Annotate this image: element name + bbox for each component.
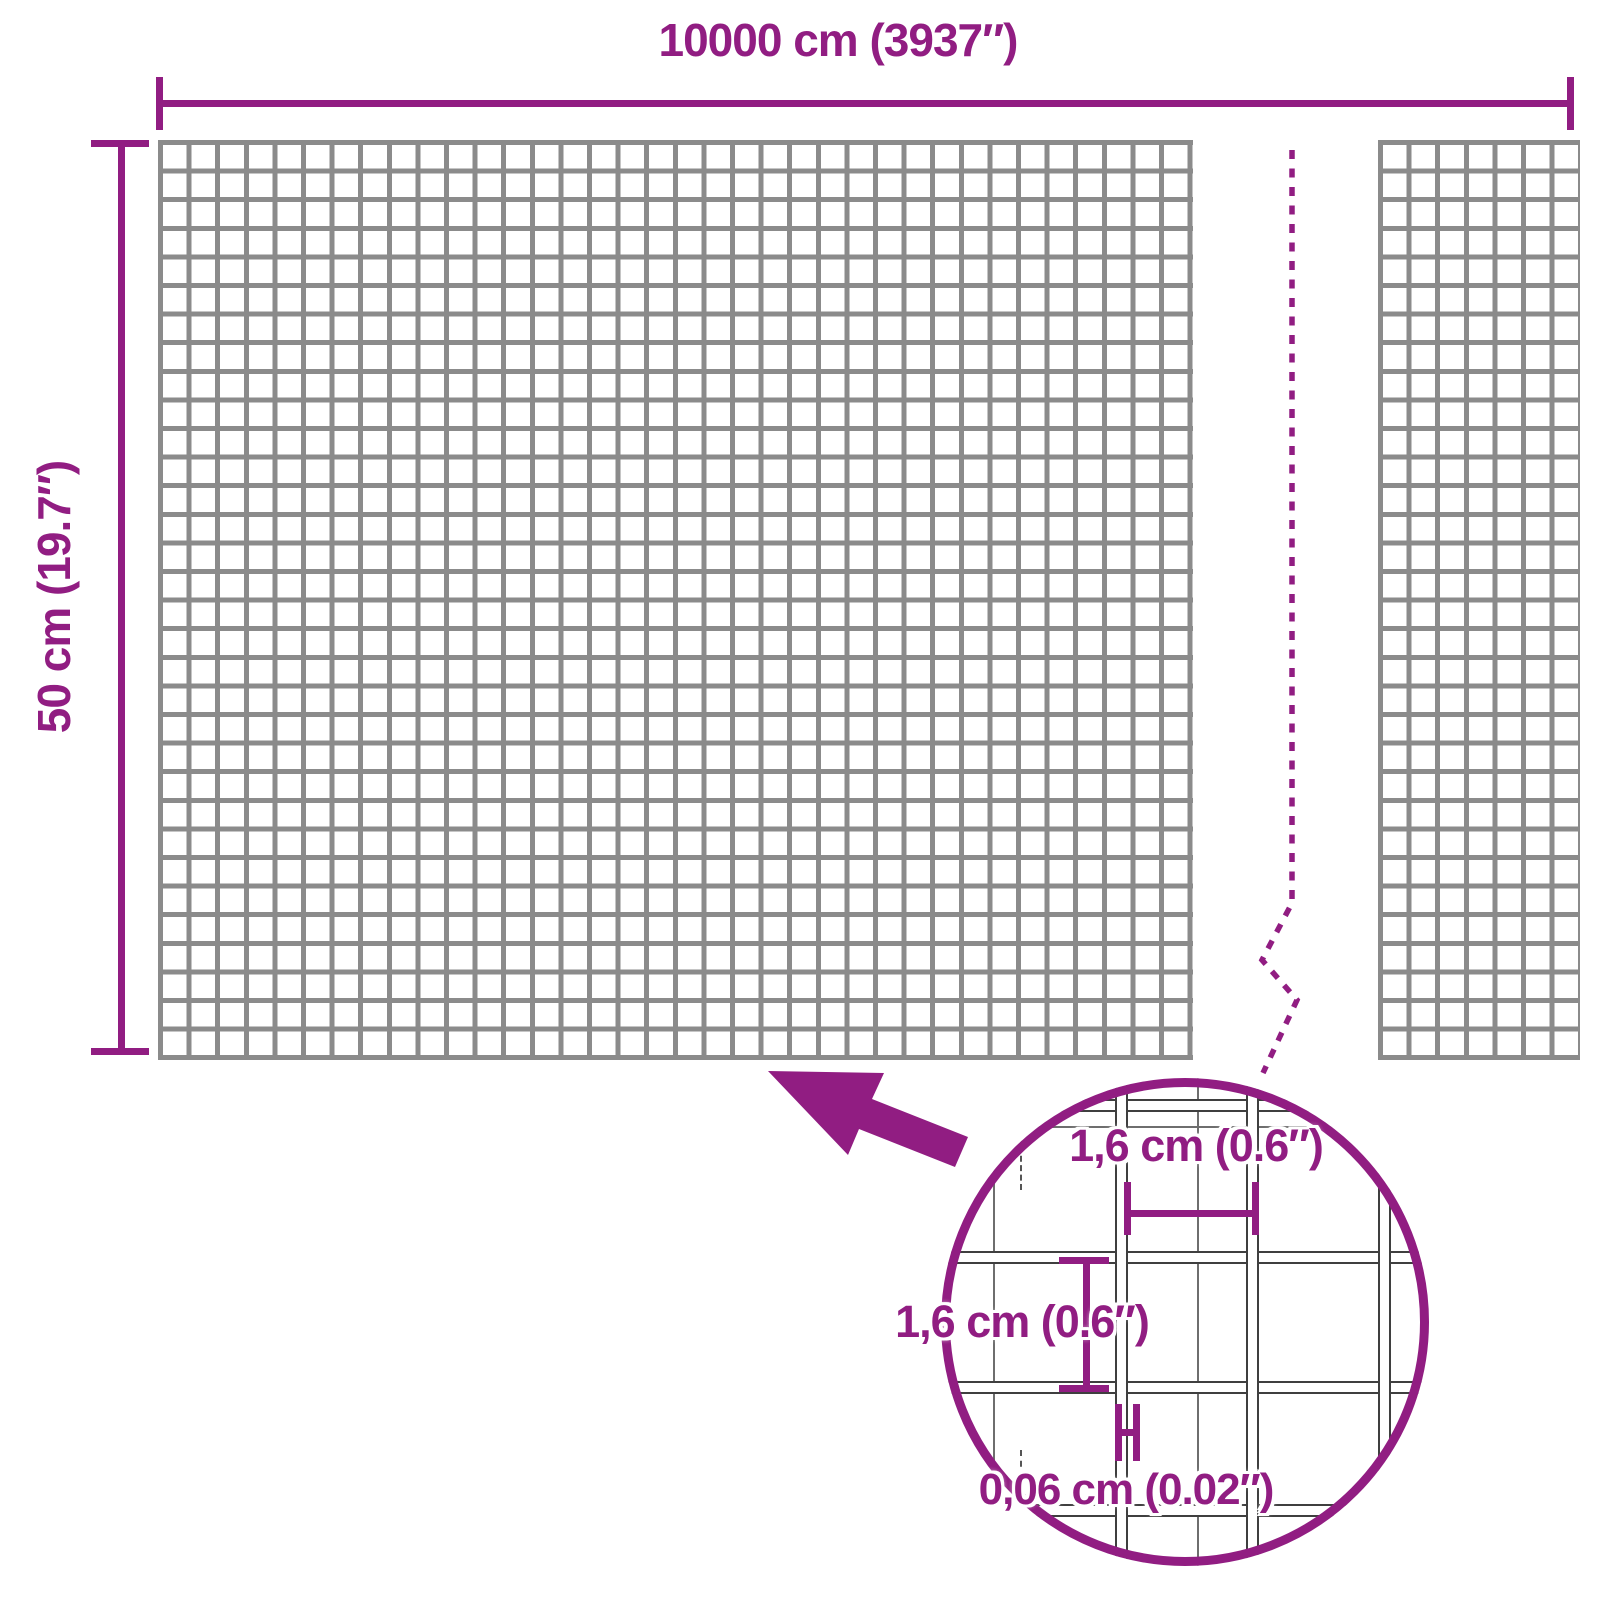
mesh-roll-main (158, 140, 1193, 1060)
wire-horizontal (941, 1381, 1429, 1394)
cell-width-left-tick (1124, 1182, 1131, 1235)
height-dimension-line (118, 144, 125, 1052)
width-dimension-line (156, 100, 1574, 107)
product-dimension-diagram: 10000 cm (3937″) 50 cm (19.7″) (0, 0, 1600, 1600)
width-dimension-right-tick (1567, 77, 1574, 130)
cell-height-bottom-tick (1059, 1385, 1109, 1392)
cell-width-label: 1,6 cm (0.6″) (1069, 1120, 1323, 1172)
wire-thickness-label: 0,06 cm (0.02″) (979, 1465, 1274, 1515)
height-dimension-label: 50 cm (19.7″) (27, 461, 81, 733)
width-dimension-label: 10000 cm (3937″) (659, 13, 1018, 67)
wire-thickness-left-bar (1115, 1404, 1122, 1461)
cell-width-right-tick (1252, 1182, 1259, 1235)
wire-vertical (1378, 1078, 1391, 1566)
mesh-roll-right (1378, 140, 1580, 1060)
cell-height-top-tick (1059, 1257, 1109, 1264)
cell-height-label: 1,6 cm (0.6″) (895, 1296, 1149, 1348)
width-dimension-left-tick (156, 77, 163, 130)
break-line-icon (1262, 150, 1297, 1073)
height-dimension-bottom-tick (91, 1048, 149, 1055)
wire-horizontal (941, 1099, 1429, 1112)
extension-line-dashed (1020, 1118, 1022, 1190)
cell-width-dimension-line (1127, 1210, 1255, 1217)
wire-thickness-right-bar (1133, 1404, 1140, 1461)
zoom-arrow-icon (768, 1071, 968, 1167)
wire-thickness-crossbar (1122, 1429, 1133, 1436)
wire-horizontal (941, 1251, 1429, 1264)
height-dimension-top-tick (91, 140, 149, 147)
